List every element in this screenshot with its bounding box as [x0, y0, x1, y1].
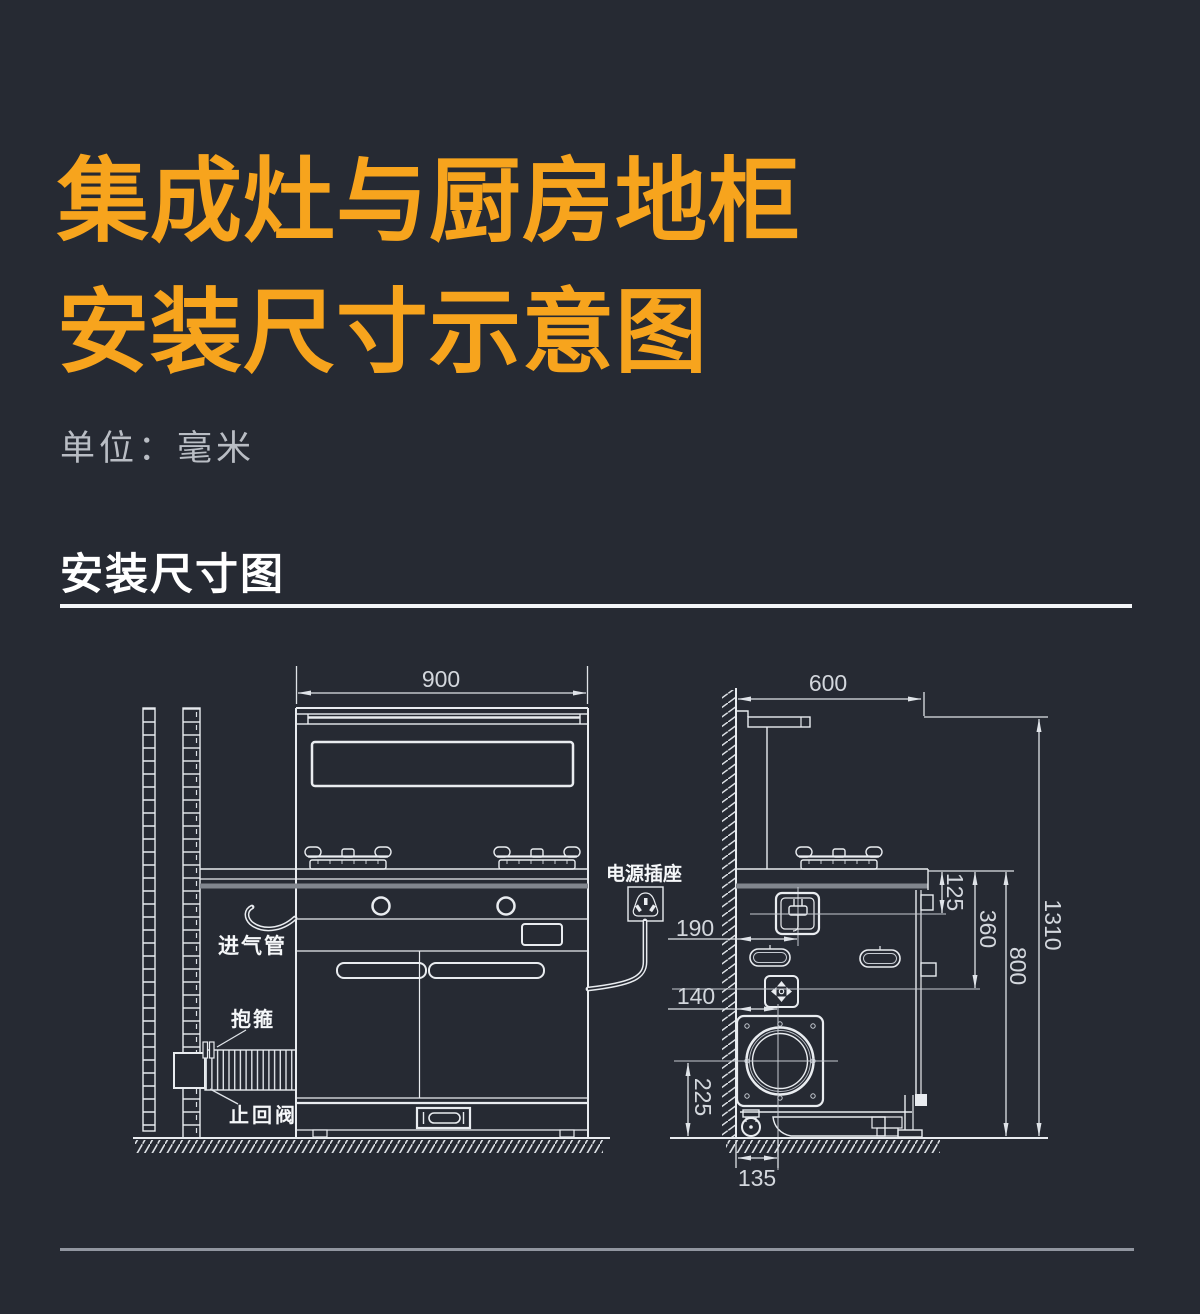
svg-text:600: 600: [809, 670, 847, 696]
clamp-leader: [217, 1030, 246, 1047]
base-frame: [740, 1112, 912, 1136]
bottom-drawer-handle: [417, 1108, 470, 1128]
label-clamp: 抱箍: [231, 1007, 275, 1031]
stove-foot: [560, 1130, 574, 1137]
dim-900: 900: [297, 666, 588, 704]
socket-cutout: [776, 887, 819, 946]
ground-hatch: [135, 1140, 603, 1153]
gas-inlet-pipe: [247, 907, 295, 929]
door-handle-right: [429, 963, 544, 978]
dim-225: 225: [688, 1063, 716, 1136]
dim-1310: 1310: [1039, 719, 1066, 1136]
wall-hatch: [722, 690, 736, 1138]
vent-cutout-left: [750, 945, 790, 966]
svg-text:1310: 1310: [1040, 899, 1066, 950]
vent-cutout-right: [860, 946, 900, 967]
door-handle-left: [337, 963, 426, 978]
dim-360: 360: [975, 872, 1001, 988]
svg-text:135: 135: [738, 1165, 776, 1191]
label-check-valve: 止回阀: [229, 1104, 298, 1127]
dim-125: 125: [942, 872, 968, 913]
svg-text:360: 360: [975, 910, 1001, 948]
corrugated-duct: [205, 1050, 296, 1090]
display-panel: [522, 924, 562, 945]
power-cord: [588, 921, 645, 989]
installation-dimension-diagram: 900 进气管 抱箍 止回阀 电源插座 600: [0, 0, 1200, 1314]
svg-text:900: 900: [422, 666, 460, 692]
svg-text:800: 800: [1005, 947, 1031, 985]
svg-text:190: 190: [676, 915, 714, 941]
top-glass-band: [296, 714, 588, 724]
dim-600: 600: [738, 670, 924, 716]
stove-front-outline: [296, 708, 588, 1137]
side-view: 600: [668, 670, 1066, 1191]
hood-screen-panel: [312, 742, 573, 786]
power-socket-icon: [628, 887, 663, 921]
front-view: 900 进气管 抱箍 止回阀 电源插座: [133, 666, 682, 1153]
hood-profile: [736, 711, 810, 869]
label-power-socket: 电源插座: [606, 862, 682, 885]
svg-text:140: 140: [677, 983, 715, 1009]
dim-800: 800: [1005, 872, 1031, 1136]
check-valve-leader: [210, 1089, 238, 1104]
stove-foot: [313, 1130, 327, 1137]
control-knob: [373, 898, 390, 915]
ground-hatch: [726, 1140, 940, 1153]
label-gas-inlet-pipe: 进气管: [218, 934, 287, 958]
gas-connection-cutout: [765, 976, 798, 1007]
caster-wheel: [742, 1110, 760, 1136]
svg-text:125: 125: [942, 873, 968, 911]
cabinet-front-face: [898, 890, 936, 1137]
duct-through-wall: [174, 1053, 205, 1088]
control-knob: [498, 898, 515, 915]
svg-text:225: 225: [690, 1078, 716, 1116]
